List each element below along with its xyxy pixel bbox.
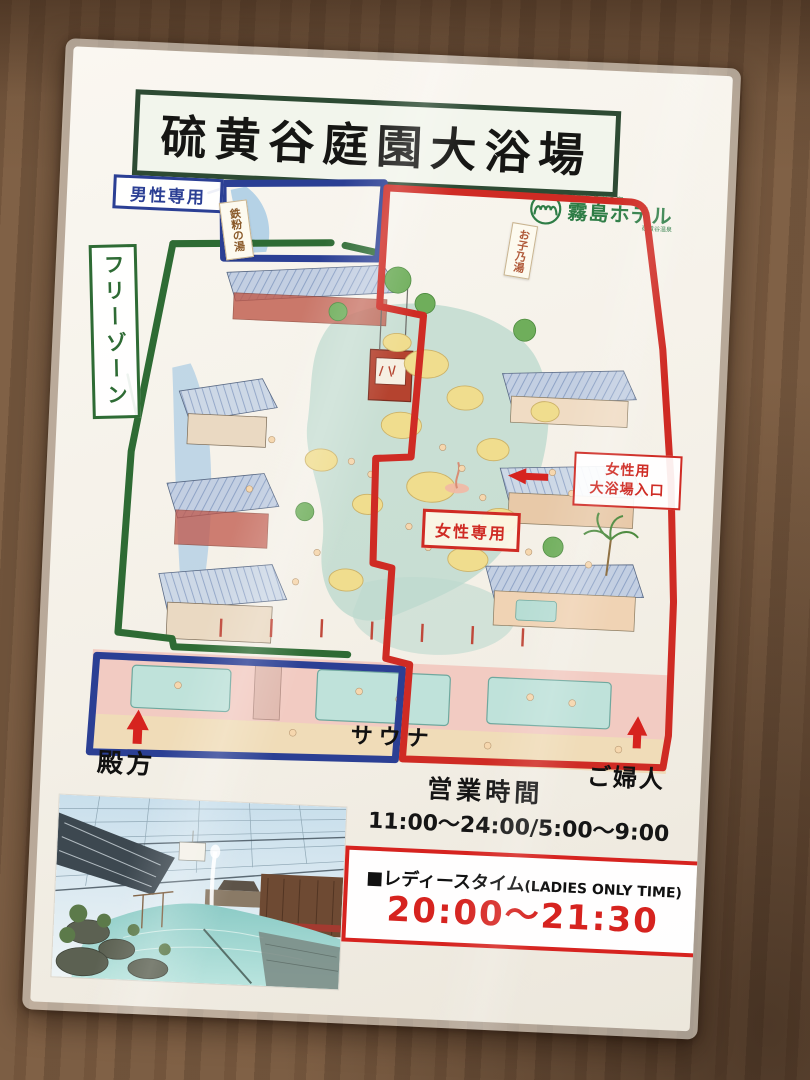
men-only-zone-text: 男性専用	[130, 180, 207, 208]
women-bath-entrance-line2: 大浴場入口	[589, 479, 665, 501]
men-exit-caption: 殿方	[96, 742, 156, 782]
business-hours-times: 11:00～24:00/5:00～9:00	[338, 801, 699, 849]
free-zone-label: フリーゾーン	[89, 244, 141, 419]
ladies-time-box: ■レディースタイム(LADIES ONLY TIME) 20:00～21:30	[341, 846, 705, 958]
indoor-bath-photo	[51, 794, 346, 989]
women-bath-entrance-label: 女性用 大浴場入口	[572, 452, 682, 511]
free-zone-text: フリーゾーン	[98, 253, 132, 410]
map-sheet-paper: 硫黄谷庭園大浴場 庭園と名湯の宿 霧島ホテル 硫黄谷温泉	[30, 46, 733, 1031]
ladies-time-value: 20:00～21:30	[386, 892, 660, 938]
photo-of-bathhouse-map: 硫黄谷庭園大浴場 庭園と名湯の宿 霧島ホテル 硫黄谷温泉	[0, 0, 810, 1080]
sauna-caption: サウナ	[350, 718, 435, 754]
men-only-zone-label: 男性専用	[112, 174, 223, 213]
bath-sign-kids-text: お子乃湯	[509, 228, 532, 274]
bath-sign-teppun-text: 鉄粉の湯	[226, 207, 248, 253]
laminated-sheet: 硫黄谷庭園大浴場 庭園と名湯の宿 霧島ホテル 硫黄谷温泉	[22, 38, 741, 1040]
women-only-zone-label: 女性専用	[421, 509, 521, 552]
women-only-zone-text: 女性専用	[435, 517, 508, 544]
women-bath-entrance-line1: 女性用	[605, 461, 651, 482]
